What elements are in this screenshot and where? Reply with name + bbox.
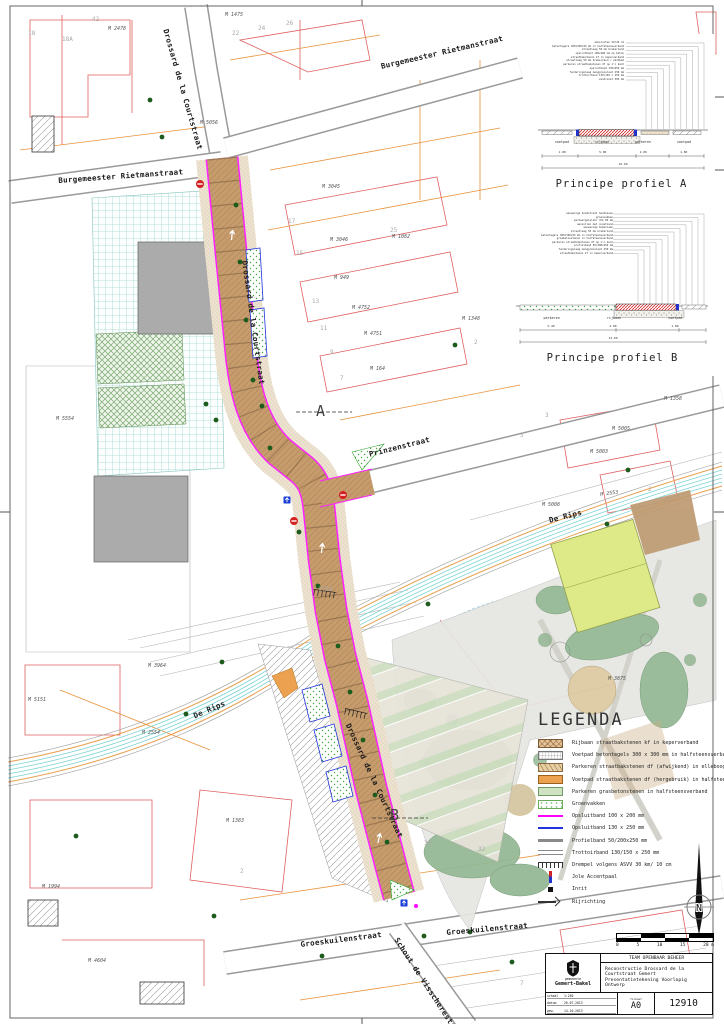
- legend-swatch: [538, 751, 563, 760]
- legend-swatch: [538, 763, 563, 772]
- legend-item-label: Drempel volgens ASVV 30 km/ 10 cm: [572, 862, 671, 868]
- building-block-north: [138, 242, 216, 334]
- profile-zone-label: voetpad: [668, 316, 682, 320]
- profile-callout: zandcunet 500 mm: [546, 78, 624, 82]
- title-block-field: gew. 14-10-2013: [547, 1009, 616, 1014]
- scale-bar-label: 15: [680, 943, 685, 948]
- title-block-fields: schaal 1:250 datum 26-07-2013 gew. 14-10…: [546, 993, 618, 1014]
- profile-b-caption: Principe profiel B: [508, 352, 717, 364]
- legend-item: Opsluitband 130 x 250 mm: [538, 822, 722, 834]
- profile-dim: 2.00: [640, 150, 647, 154]
- legend-item: Opsluitband 100 x 200 mm: [538, 810, 722, 822]
- field-value: 26-07-2013: [564, 1001, 583, 1005]
- legend-swatch: [538, 862, 563, 868]
- legend-item: Parkeren straatbakstenen df (afwijkend) …: [538, 761, 722, 773]
- profile-dim: 5.40: [547, 324, 554, 328]
- profile-zone-label: voetpad: [555, 140, 569, 144]
- field-value: 14-10-2013: [564, 1009, 583, 1013]
- field-key: datum: [547, 1001, 564, 1005]
- profile-zone-label: parkeren: [635, 140, 651, 144]
- profile-b-total: 12.00: [520, 336, 706, 340]
- scale-bar-segments: [616, 933, 714, 942]
- legend-item-label: Profielband 50/200x250 mm: [572, 838, 647, 844]
- profile-dim: 4.80: [609, 324, 616, 328]
- drawing-sheet: Drossard de la CourtstraatDrossard de la…: [0, 0, 724, 1024]
- scale-bar-labels: 05101520 m: [616, 943, 714, 948]
- profile-a-zones: voetpadrijbaanparkerenvoetpad: [542, 140, 704, 144]
- field-key: schaal: [547, 994, 564, 998]
- profile-b-callouts: aanwezige boomstraat handhavengroenvakke…: [532, 212, 613, 255]
- legend-swatch: [538, 827, 563, 829]
- legend-item: Rijbaan straatbakstenen kf in keperverba…: [538, 737, 722, 749]
- profile-zone-label: rijbaan: [595, 140, 609, 144]
- municipality-logo: gemeente Gemert-Bakel: [546, 954, 601, 992]
- scale-bar-label: 5: [636, 943, 639, 948]
- legend-item: Parkeren grasbetonstenen in halfsteensve…: [538, 786, 722, 798]
- legend-swatch: [549, 871, 552, 883]
- legend-item-label: Opsluitband 130 x 250 mm: [572, 825, 644, 831]
- legend-swatch: [538, 850, 563, 855]
- profile-a-caption: Principe profiel A: [528, 178, 715, 190]
- legend-item-label: Trottoirband 130/150 x 250 mm: [572, 850, 659, 856]
- legend-swatch: [538, 839, 563, 842]
- department-label: TEAM OPENBAAR BEHEER: [601, 954, 712, 963]
- profile-a-total: 10.60: [542, 162, 704, 166]
- scale-bar-label: 10: [657, 943, 662, 948]
- profile-a-dims: 1.805.002.001.80: [542, 150, 704, 154]
- legend-item-label: Parkeren straatbakstenen df (afwijkend) …: [572, 764, 724, 770]
- field-value: 1:250: [564, 994, 573, 998]
- legend-item-label: Groenvakken: [572, 801, 605, 807]
- legend-item-label: Voetpad straatbakstenen df (hergebruik) …: [572, 777, 724, 783]
- building-block-south: [94, 476, 188, 562]
- title-block-field: datum 26-07-2013: [547, 1001, 616, 1006]
- legend-item-label: Jole Accentpaal: [572, 874, 617, 880]
- legend-swatch: [538, 787, 563, 796]
- profile-dim: 1.80: [559, 150, 566, 154]
- profile-a: aansluiten 50/20 cmbetontegels 300x300x4…: [528, 34, 715, 206]
- legend-item-label: Rijbaan straatbakstenen kf in keperverba…: [572, 740, 698, 746]
- profile-b: aanwezige boomstraat handhavengroenvakke…: [508, 206, 717, 376]
- legend-swatch: [538, 800, 563, 809]
- legend-swatch: [538, 897, 563, 906]
- profile-b-dims: 5.404.801.80: [520, 324, 706, 328]
- project-subtitle: Presentatietekening Voorlopig Ontwerp: [605, 978, 708, 988]
- scale-bar-label: 0: [616, 943, 619, 948]
- municipality-label: Gemert-Bakel: [555, 981, 591, 987]
- scale-bar: 05101520 m: [616, 933, 714, 948]
- legend-swatch: [538, 775, 563, 784]
- profile-zone-label: parkeren: [544, 316, 560, 320]
- profile-callout: straatbakstenen kf in keperverband: [532, 252, 613, 256]
- profile-zone-label: voetpad: [677, 140, 691, 144]
- profile-dim: 5.00: [599, 150, 606, 154]
- legend-item-label: Inrit: [572, 886, 587, 892]
- drawing-number: 12910: [655, 993, 712, 1014]
- title-block: gemeente Gemert-Bakel TEAM OPENBAAR BEHE…: [545, 953, 713, 1015]
- profile-dim: 1.80: [671, 324, 678, 328]
- legend-title: LEGENDA: [538, 710, 722, 730]
- legend-item-label: Opsluitband 100 x 200 mm: [572, 813, 644, 819]
- profile-zone-label: rijbaan: [607, 316, 621, 320]
- legend-swatch: [538, 739, 563, 748]
- profile-dim: 1.80: [680, 150, 687, 154]
- legend-item: Voetpad betontegels 300 x 300 mm in half…: [538, 749, 722, 761]
- legend-swatch: [538, 815, 563, 817]
- legend-swatch: [548, 887, 553, 892]
- legend-item: Voetpad straatbakstenen df (hergebruik) …: [538, 774, 722, 786]
- title-block-field: schaal 1:250: [547, 994, 616, 999]
- scale-bar-label: 20 m: [703, 943, 714, 948]
- legend-item-label: Voetpad betontegels 300 x 300 mm in half…: [572, 752, 724, 758]
- north-label: N: [696, 903, 702, 914]
- sheet-format: A0: [631, 1001, 641, 1011]
- north-arrow: N: [682, 843, 716, 939]
- profile-a-callouts: aansluiten 50/20 cmbetontegels 300x300x4…: [546, 41, 624, 82]
- project-title: Reconstructie Drossard de la Courtstraat…: [605, 967, 708, 977]
- legend-item-label: Parkeren grasbetonstenen in halfsteensve…: [572, 789, 707, 795]
- legend-item: Groenvakken: [538, 798, 722, 810]
- coat-of-arms-icon: [565, 959, 581, 977]
- field-key: gew.: [547, 1009, 564, 1013]
- profile-b-zones: parkerenrijbaanvoetpad: [520, 316, 706, 320]
- legend-item-label: Rijrichting: [572, 899, 605, 905]
